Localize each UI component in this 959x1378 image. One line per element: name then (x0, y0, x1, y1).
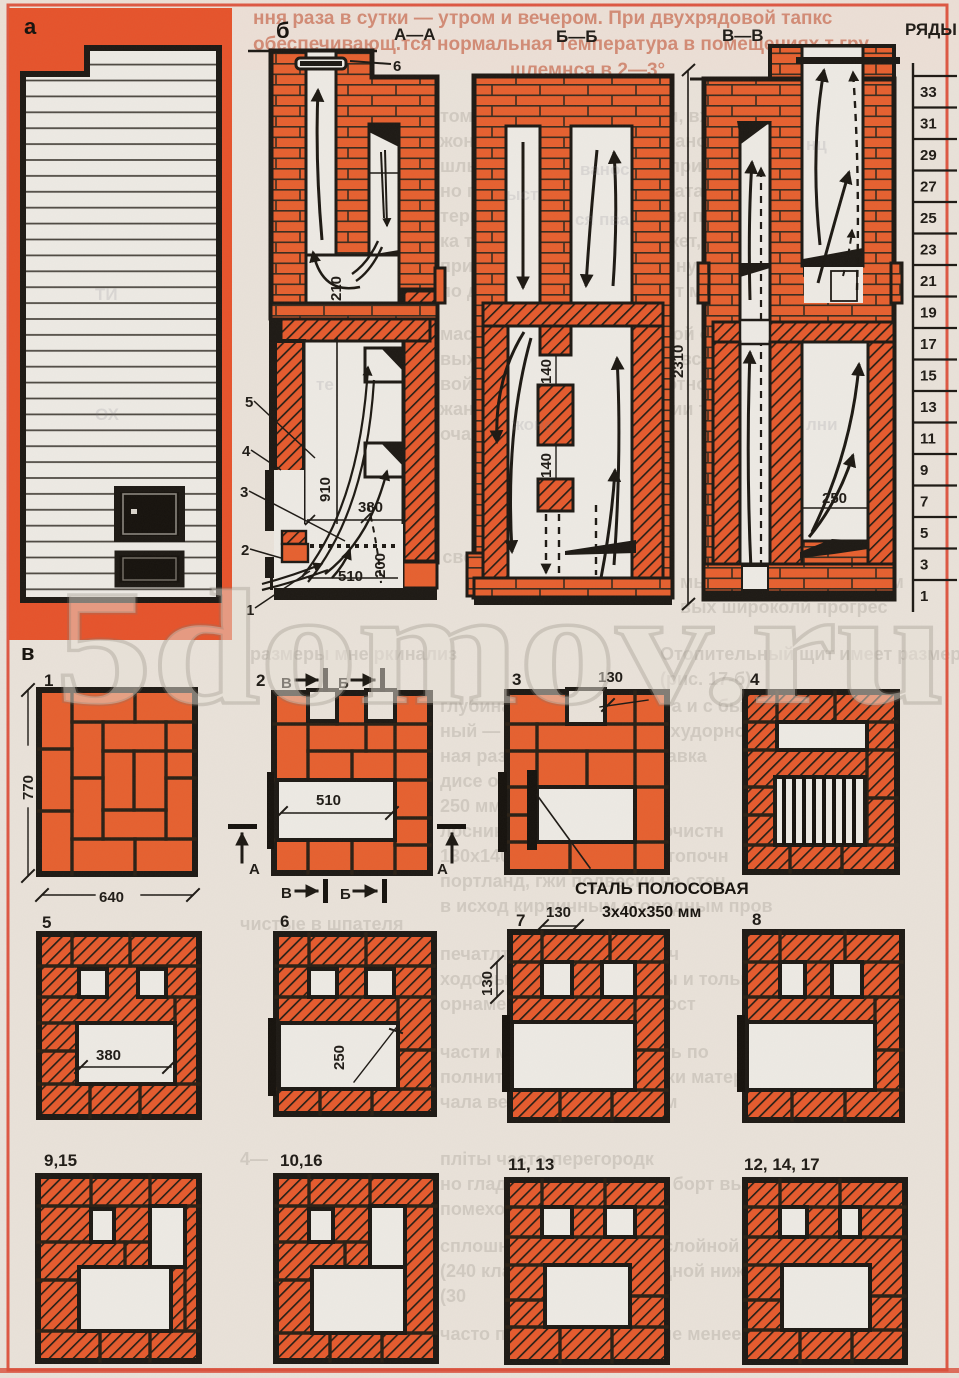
svg-text:5domov.ru: 5domov.ru (55, 556, 945, 739)
